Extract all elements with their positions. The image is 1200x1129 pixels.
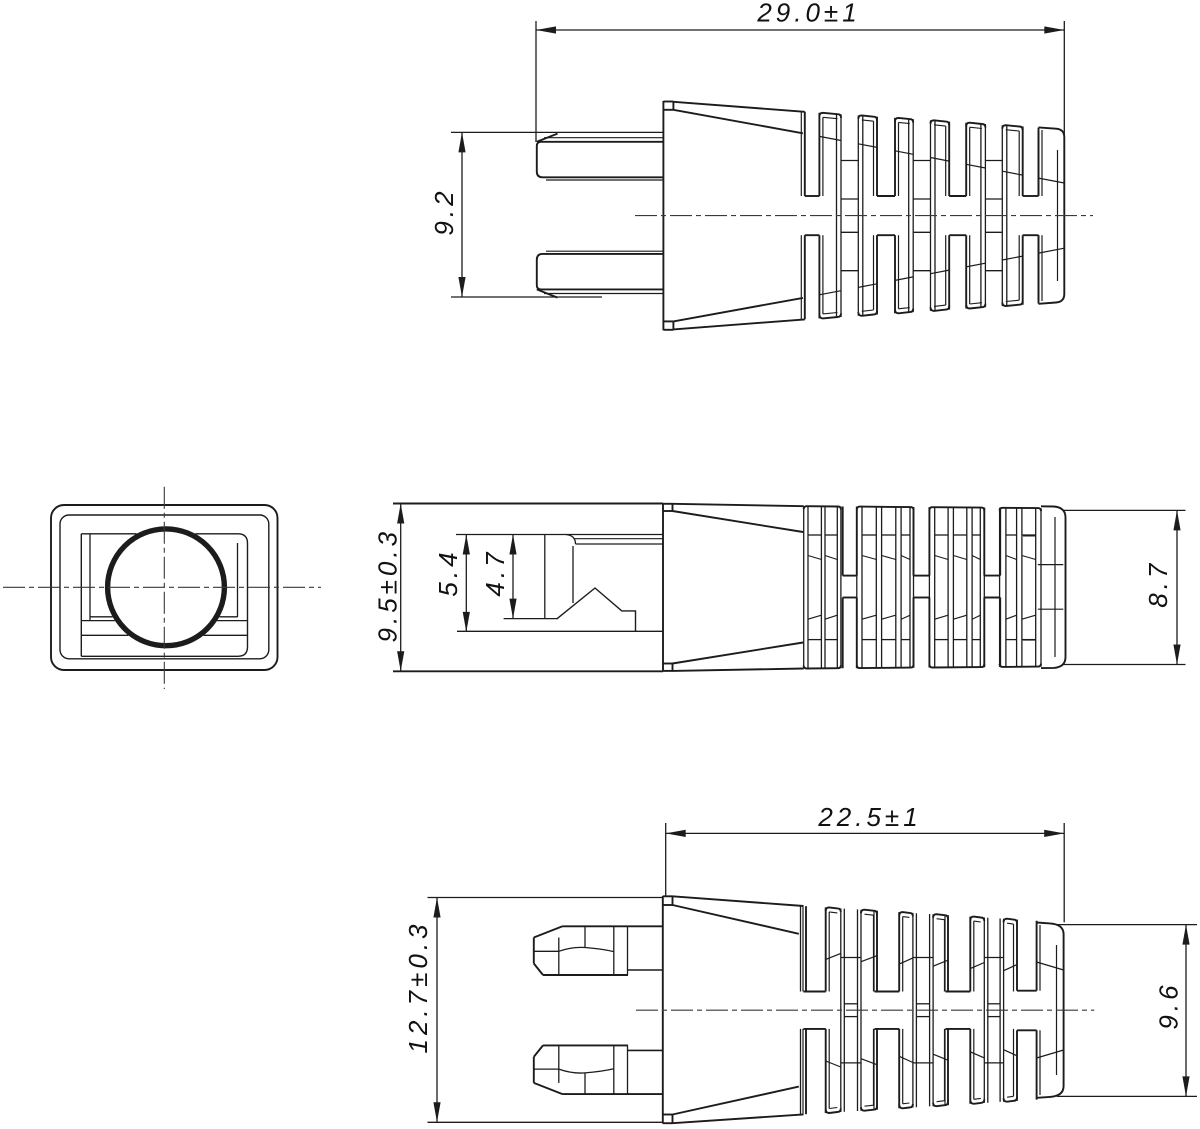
svg-text:4.7: 4.7: [480, 548, 510, 596]
svg-text:9.5±0.3: 9.5±0.3: [373, 528, 403, 643]
svg-text:12.7±0.3: 12.7±0.3: [403, 920, 433, 1053]
svg-text:22.5±1: 22.5±1: [817, 802, 921, 832]
svg-text:5.4: 5.4: [433, 548, 463, 596]
svg-text:9.6: 9.6: [1154, 981, 1184, 1029]
svg-text:9.2: 9.2: [429, 187, 459, 235]
svg-text:8.7: 8.7: [1143, 560, 1173, 608]
svg-text:29.0±1: 29.0±1: [756, 0, 860, 28]
